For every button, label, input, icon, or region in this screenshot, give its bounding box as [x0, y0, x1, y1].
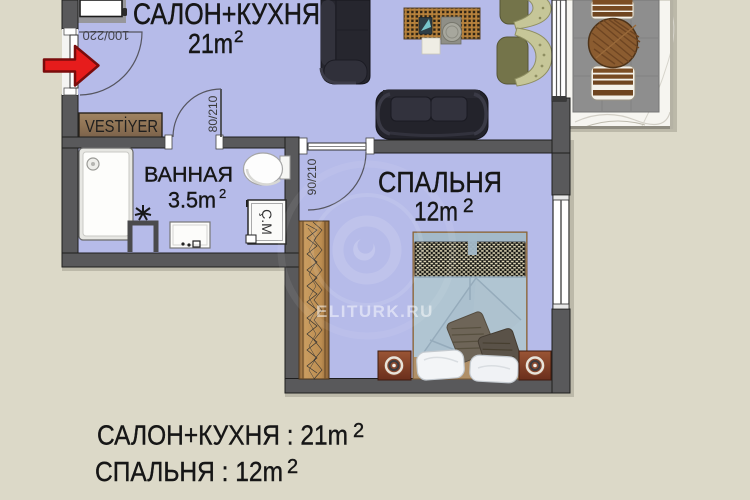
svg-text:80/210: 80/210	[206, 95, 220, 132]
svg-text:VESTİYER: VESTİYER	[85, 116, 158, 136]
svg-text:Ç.M: Ç.M	[259, 209, 275, 235]
svg-text:100/220: 100/220	[83, 28, 130, 43]
svg-text:3.5m: 3.5m	[168, 188, 216, 213]
svg-text:САЛОН+КУХНЯ : 21m: САЛОН+КУХНЯ : 21m	[97, 420, 348, 451]
svg-text:12m: 12m	[414, 197, 458, 227]
svg-text:СПАЛЬНЯ : 12m: СПАЛЬНЯ : 12m	[95, 456, 283, 487]
svg-text:2: 2	[234, 27, 243, 46]
svg-text:ВАННАЯ: ВАННАЯ	[144, 163, 233, 187]
svg-text:САЛОН+КУХНЯ: САЛОН+КУХНЯ	[133, 0, 320, 31]
svg-text:2: 2	[463, 196, 474, 217]
svg-text:21m: 21m	[188, 28, 233, 59]
svg-text:ELITURK.RU: ELITURK.RU	[316, 302, 434, 321]
svg-text:2: 2	[353, 420, 364, 442]
svg-text:2: 2	[219, 186, 226, 201]
svg-text:2: 2	[287, 456, 298, 478]
svg-text:СПАЛЬНЯ: СПАЛЬНЯ	[378, 167, 502, 199]
